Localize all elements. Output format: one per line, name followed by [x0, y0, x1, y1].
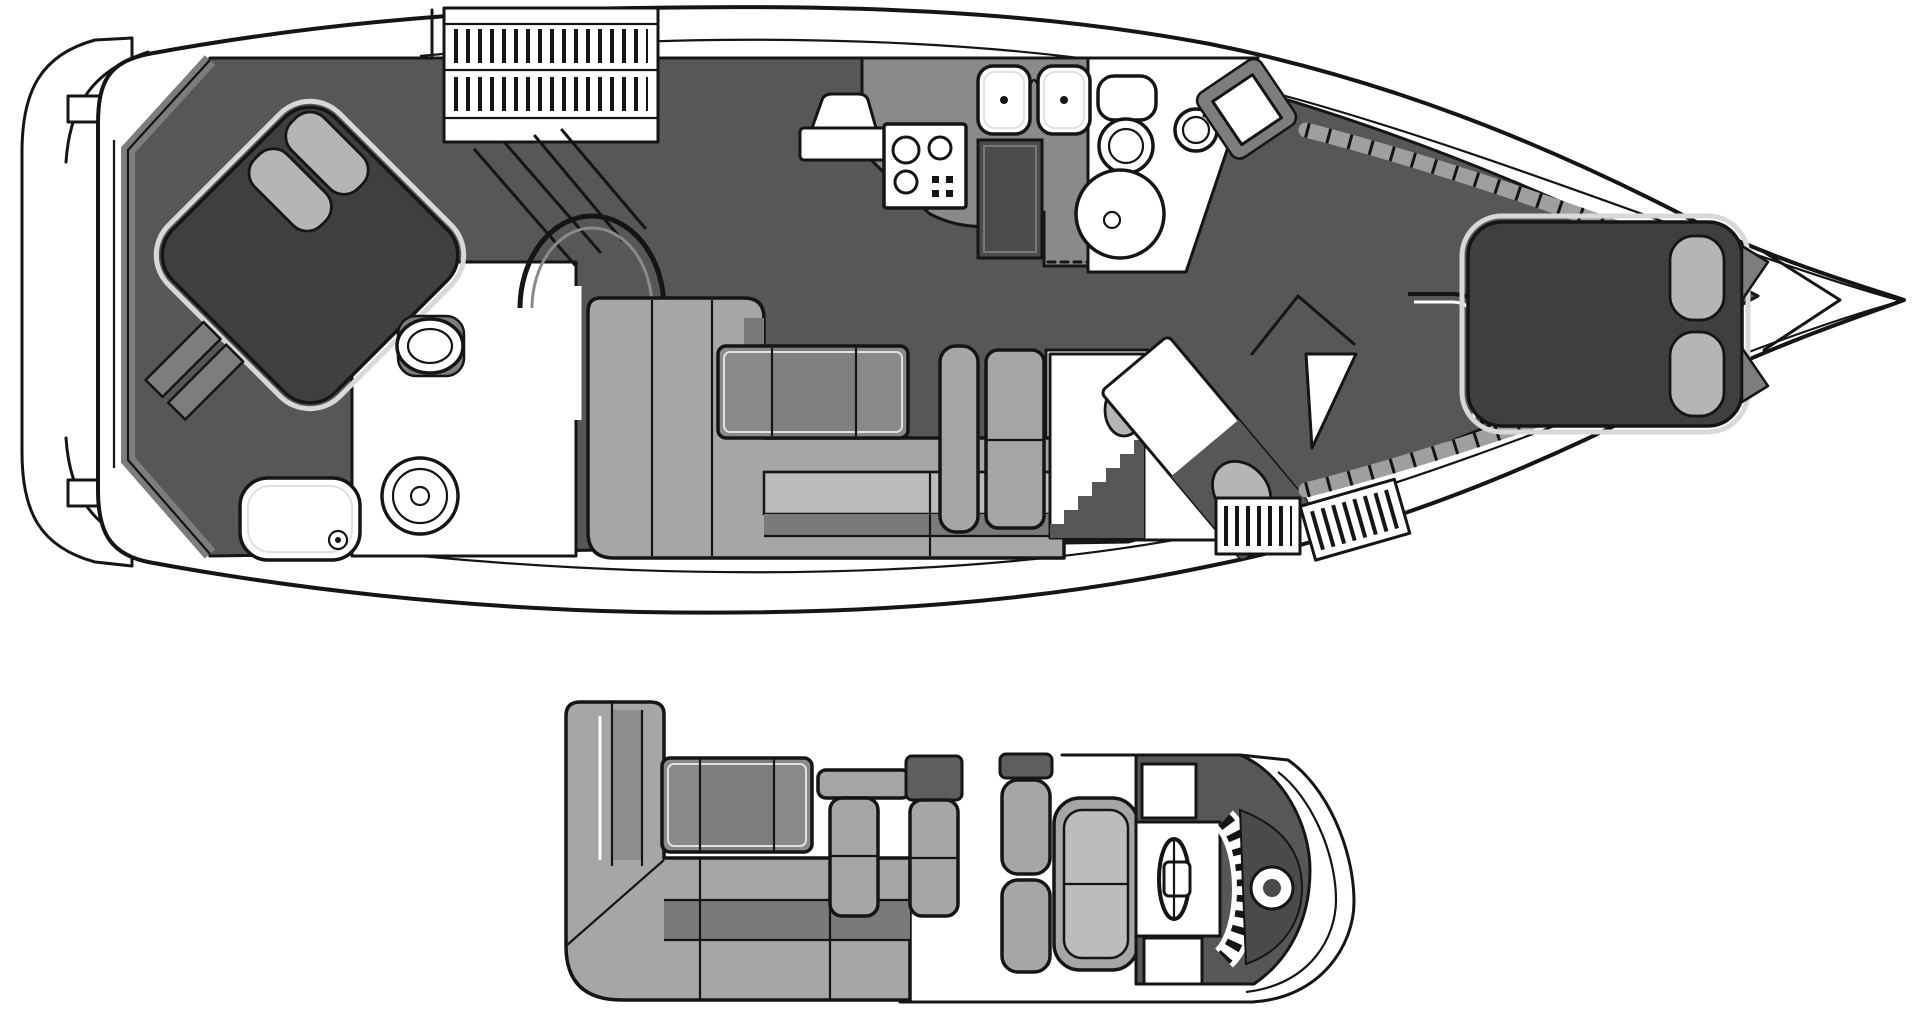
helm-seat — [1054, 798, 1138, 970]
pillow — [1670, 332, 1724, 416]
armchair — [940, 346, 1044, 532]
flybridge-plan — [566, 702, 1354, 1002]
bathtub — [240, 478, 360, 560]
back-to-back-seat — [1000, 754, 1052, 972]
toilet-tank — [1098, 76, 1156, 120]
boat-floorplan-page — [0, 0, 1920, 1021]
flybridge-table — [662, 758, 812, 852]
steps — [1216, 498, 1300, 554]
steering-wheel — [1159, 839, 1190, 919]
cocktail-table — [718, 346, 908, 438]
boat-floorplan-drawing — [0, 0, 1920, 1021]
refrigerator — [978, 140, 1042, 258]
main-deck-plan — [22, 7, 1904, 613]
shower-basin — [1076, 170, 1164, 258]
pillow — [1670, 236, 1724, 320]
helm-console — [1136, 755, 1310, 984]
toilet — [1099, 119, 1153, 173]
cooktop — [884, 124, 966, 208]
